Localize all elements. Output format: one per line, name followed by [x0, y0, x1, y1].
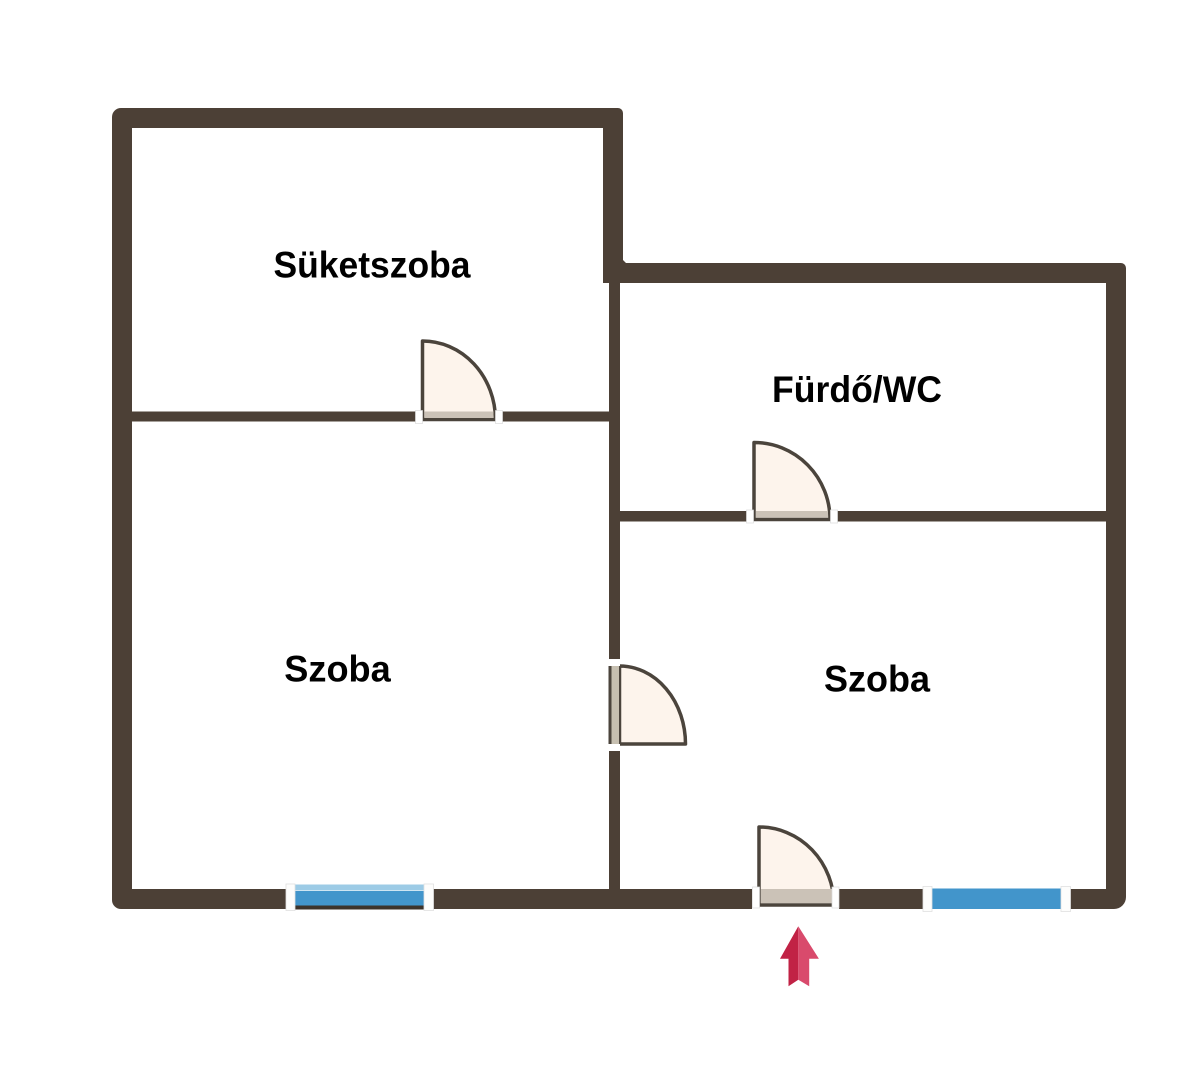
svg-text:Fürdő/WC: Fürdő/WC: [772, 368, 942, 410]
svg-text:Süketszoba: Süketszoba: [274, 244, 472, 286]
svg-text:Szoba: Szoba: [824, 658, 931, 700]
svg-text:Szoba: Szoba: [284, 648, 392, 690]
